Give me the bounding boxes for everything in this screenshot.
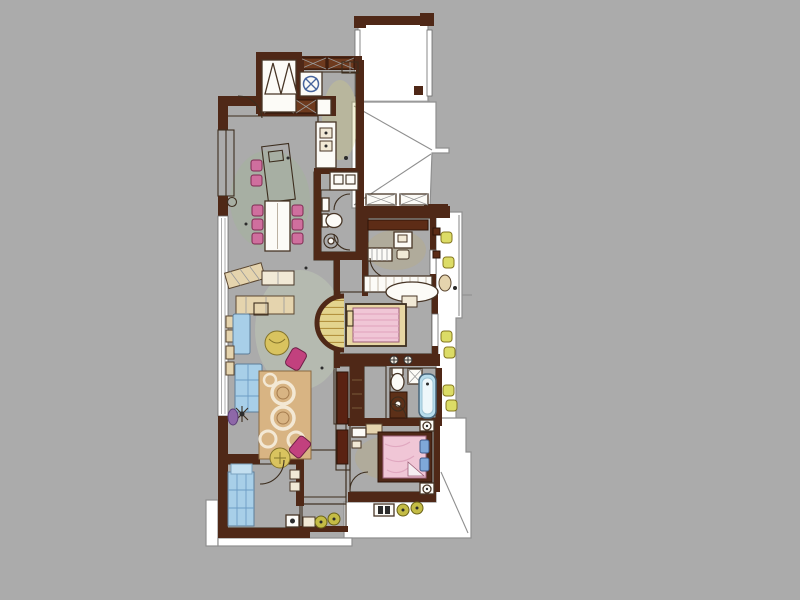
arm-cushion [226,362,234,375]
sectional-sofa [235,364,262,412]
bath-right-wall [436,368,442,426]
arm-cushion [226,316,233,328]
family-bottom-wall [218,528,310,538]
dining-chair [252,233,263,244]
side-table [433,228,440,235]
master-bottom-wall [338,354,440,366]
wardrobe-closet [350,366,364,424]
dining-chair [251,175,262,186]
terrace-dot [453,286,457,290]
dining-chair [292,219,303,230]
balcony-stool [441,331,452,342]
daybed-pillow [231,464,252,474]
stool-dot [402,509,405,512]
side-table [290,482,300,491]
floor-dot [245,223,248,226]
floor-plan-drawing [0,0,800,600]
balcony-stool [444,347,455,358]
balcony-stool [446,400,457,411]
tv-console [236,296,294,314]
column [414,86,423,95]
tub-drain [426,383,429,386]
toilet-bowl [391,374,404,391]
side-sliver [206,500,218,546]
balcony-stool [443,257,454,268]
stool-dot [320,521,323,524]
knob [325,145,328,148]
arm-cushion [226,330,233,342]
desk-chair [397,250,409,259]
pillow [420,440,429,453]
powder-left-wall [314,172,321,260]
side-table [290,470,300,479]
vase [228,409,238,425]
stool-dot [333,518,336,521]
study-left-wall [362,206,368,276]
planter [439,275,451,291]
wall-block [420,13,434,26]
dining-chair [252,219,263,230]
door-roller-icon [404,356,412,364]
dining-chair [252,205,263,216]
pillow [420,458,429,471]
shelf-box [352,441,361,448]
box-dot [290,519,295,524]
shelf [352,428,366,437]
stool-dot [416,507,419,510]
window-band [427,30,432,96]
hall-cabinet [317,99,331,115]
toilet-bowl [326,214,342,228]
left-wall [218,196,228,216]
side-table [433,251,440,258]
dining-chair [292,233,303,244]
sectional-sofa [233,314,250,354]
tall-cabinet [337,372,348,424]
floor-dot [305,267,308,270]
floor-dot [321,367,324,370]
desk-item [398,235,407,242]
dining-chair [292,205,303,216]
slipper [385,506,390,514]
dining-chair [251,160,262,171]
side-table [303,517,315,527]
knob [325,132,328,135]
master-bed-mattress [353,308,399,342]
door-roller-icon [390,356,398,364]
balcony-stool [441,232,452,243]
slipper-tray [374,504,394,516]
balcony-stool [443,385,454,396]
basin-drain [328,238,334,244]
wall-block [354,16,366,28]
day-bed [228,472,254,526]
arm-cushion [226,346,234,359]
bottom-strip [218,538,352,546]
slipper [378,506,383,514]
family-right-wall [296,454,304,506]
headboard-cabinet [368,220,428,230]
left-wall-lower [218,416,228,530]
tall-cabinet [337,430,348,464]
floor-dot [287,157,290,160]
tall-cabinet [322,198,329,211]
bedroom-right-wall [434,426,440,492]
floor-dot [344,156,348,160]
floor-plan-canvas [0,0,800,600]
left-wall [218,96,228,130]
